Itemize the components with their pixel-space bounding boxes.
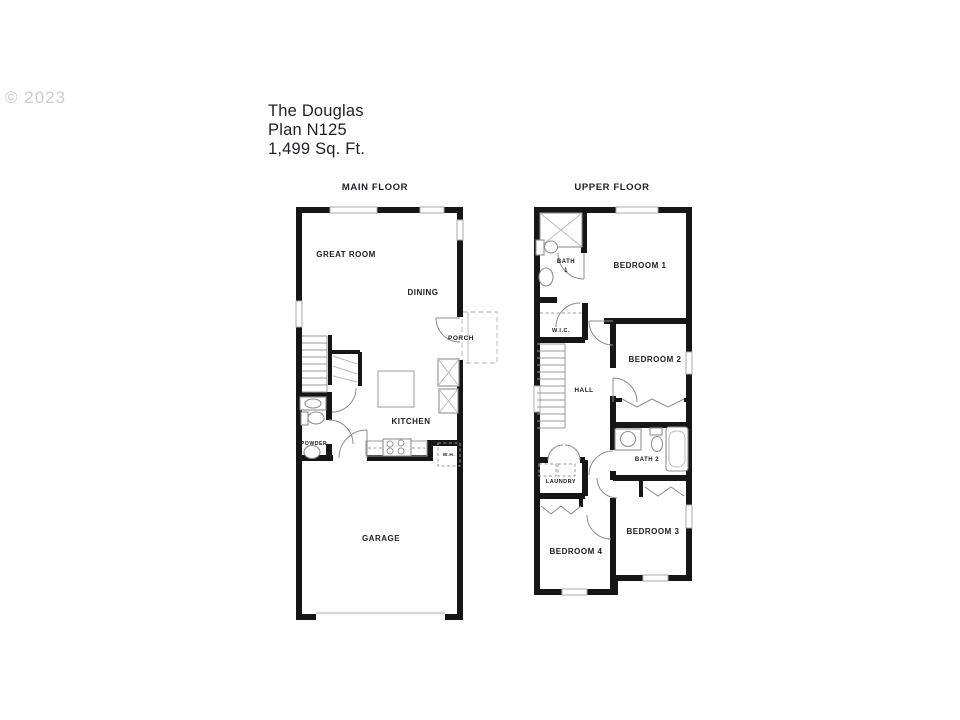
bath1-label-line1: BATH — [557, 259, 575, 265]
kitchen-island — [378, 371, 414, 407]
floor-plan-sheet: © 2023 The Douglas Plan N125 1,499 Sq. F… — [0, 0, 960, 720]
kitchen-label: KITCHEN — [391, 417, 430, 426]
toilet-icon — [545, 241, 558, 253]
powder-label: POWDER — [301, 441, 327, 447]
sink-icon — [539, 268, 553, 286]
great-room-label: GREAT ROOM — [316, 250, 376, 259]
bedroom3-label: BEDROOM 3 — [627, 527, 680, 536]
toilet-icon — [652, 437, 663, 452]
linen-double-door-arcs — [548, 445, 580, 460]
wic: W.I.C. — [540, 303, 582, 334]
window — [686, 505, 692, 528]
bifold-doors — [645, 487, 684, 496]
toilet-tank — [536, 240, 544, 255]
bath1-door-arc — [558, 253, 584, 279]
upper-floor-plan: UPPER FLOOR BATH — [534, 182, 692, 595]
bath2-label: BATH 2 — [635, 457, 659, 463]
main-floor-windows — [296, 207, 463, 327]
bedroom4-label: BEDROOM 4 — [550, 547, 603, 556]
bath2: BATH 2 — [615, 427, 688, 471]
powder-door-arc — [329, 420, 353, 444]
sink-icon — [304, 446, 320, 459]
toilet-icon — [308, 412, 324, 424]
stove-icon — [383, 439, 411, 456]
stair-treads — [537, 344, 565, 428]
window — [534, 386, 540, 412]
bath1: BATH 1 — [536, 213, 584, 286]
wic-label: W.I.C. — [552, 328, 570, 334]
hall-label: HALL — [574, 387, 593, 394]
wic-door-arc — [556, 303, 580, 327]
dryer-icon — [558, 464, 575, 476]
sink-icon — [305, 399, 321, 408]
main-floor-title: MAIN FLOOR — [342, 182, 408, 193]
bedroom4-door-arc — [587, 515, 611, 539]
closet-under-stairs — [332, 356, 357, 412]
toilet-tank — [301, 412, 308, 425]
water-heater-label: W.H. — [443, 452, 455, 458]
bedroom2-label: BEDROOM 2 — [629, 355, 682, 364]
window — [562, 589, 587, 595]
window — [420, 207, 444, 213]
window — [330, 207, 377, 213]
washer-icon — [539, 464, 556, 476]
window — [296, 301, 302, 327]
bath2-door-arc — [589, 451, 613, 475]
laundry-label: LAUNDRY — [546, 479, 576, 485]
window — [686, 352, 692, 374]
laundry: LAUNDRY — [539, 445, 580, 485]
closet-shelves — [333, 356, 357, 382]
toilet-tank — [650, 428, 662, 435]
main-floor-plan: MAIN FLOOR — [296, 182, 497, 620]
upper-floor-title: UPPER FLOOR — [574, 182, 649, 193]
porch-label: PORCH — [448, 335, 474, 342]
garage-label: GARAGE — [362, 534, 400, 543]
bedroom1-label: BEDROOM 1 — [614, 261, 667, 270]
water-heater: W.H. — [438, 443, 460, 466]
bifold-doors — [541, 506, 581, 514]
floor-plans-drawing: MAIN FLOOR — [0, 0, 960, 720]
closet-door-arc — [332, 388, 356, 412]
stairs-main — [302, 336, 327, 392]
window — [616, 207, 658, 213]
bath1-label-line2: 1 — [564, 268, 568, 274]
bedroom1-door-arc — [589, 321, 613, 345]
window — [457, 220, 463, 240]
dining-label: DINING — [408, 288, 439, 297]
stairs-upper — [537, 344, 565, 428]
sink-icon — [621, 432, 636, 447]
window — [643, 575, 668, 581]
bifold-doors — [622, 399, 684, 407]
